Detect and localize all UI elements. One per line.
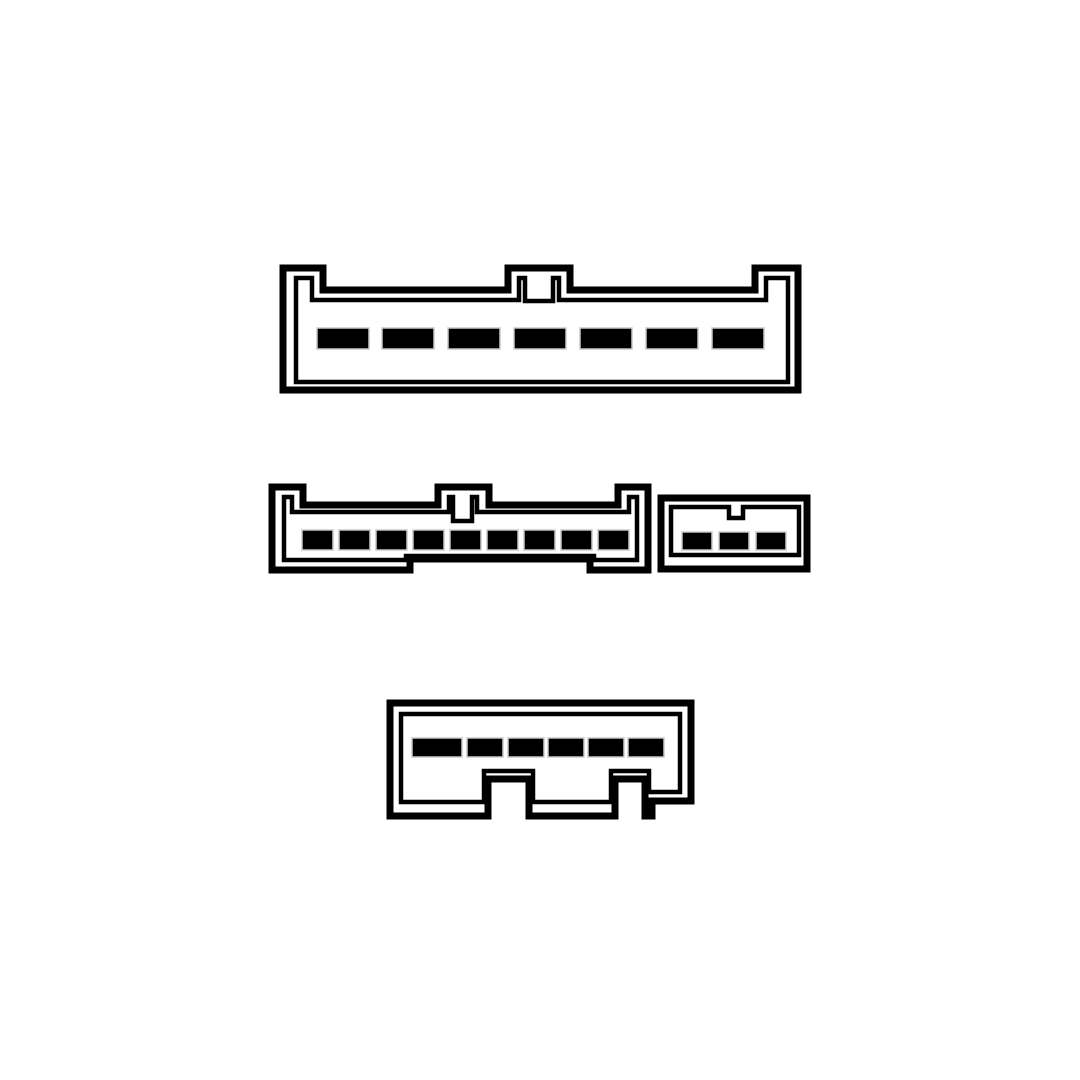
connector-middle-left-9pin-pin-6 xyxy=(487,530,518,550)
connector-top-7pin xyxy=(283,268,798,390)
connector-middle-left-9pin-pin-4 xyxy=(413,530,444,550)
connector-middle-left-9pin-pin-9 xyxy=(598,530,629,550)
connector-middle-left-9pin-pin-5 xyxy=(450,530,481,550)
connector-bottom-6pin-pin-1 xyxy=(412,738,462,757)
connector-middle-left-9pin-pin-8 xyxy=(561,530,592,550)
connector-top-7pin-pin-5 xyxy=(580,328,632,349)
connector-bottom-6pin-pin-5 xyxy=(588,738,624,757)
connector-bottom-6pin-pin-2 xyxy=(467,738,503,757)
connector-top-7pin-pin-3 xyxy=(448,328,500,349)
connector-bottom-6pin-pin-6 xyxy=(628,738,664,757)
connector-middle-right-3pin-pin-2 xyxy=(719,532,749,550)
connector-bottom-6pin-inner-outline xyxy=(401,714,680,802)
connector-bottom-6pin xyxy=(390,703,691,816)
connector-bottom-6pin-pin-3 xyxy=(508,738,544,757)
connector-pinout-diagram xyxy=(0,0,1080,1080)
connector-top-7pin-pin-2 xyxy=(382,328,434,349)
connector-middle-left-9pin-pin-2 xyxy=(339,530,370,550)
connector-top-7pin-pin-4 xyxy=(514,328,566,349)
connector-middle-right-3pin-pin-3 xyxy=(756,532,786,550)
connector-middle-right-3pin-pin-1 xyxy=(682,532,712,550)
connector-top-7pin-pin-6 xyxy=(646,328,698,349)
connector-middle-left-9pin xyxy=(272,487,648,570)
connector-bottom-6pin-outer-outline xyxy=(390,703,691,816)
diagram-page xyxy=(0,0,1080,1080)
connector-middle-right-3pin xyxy=(661,498,807,569)
connector-middle-left-9pin-pin-3 xyxy=(376,530,407,550)
connector-top-7pin-pin-1 xyxy=(317,328,369,349)
connector-bottom-6pin-pin-4 xyxy=(548,738,584,757)
connector-top-7pin-pin-7 xyxy=(712,328,764,349)
connector-middle-left-9pin-pin-7 xyxy=(524,530,555,550)
connector-middle-left-9pin-pin-1 xyxy=(302,530,333,550)
